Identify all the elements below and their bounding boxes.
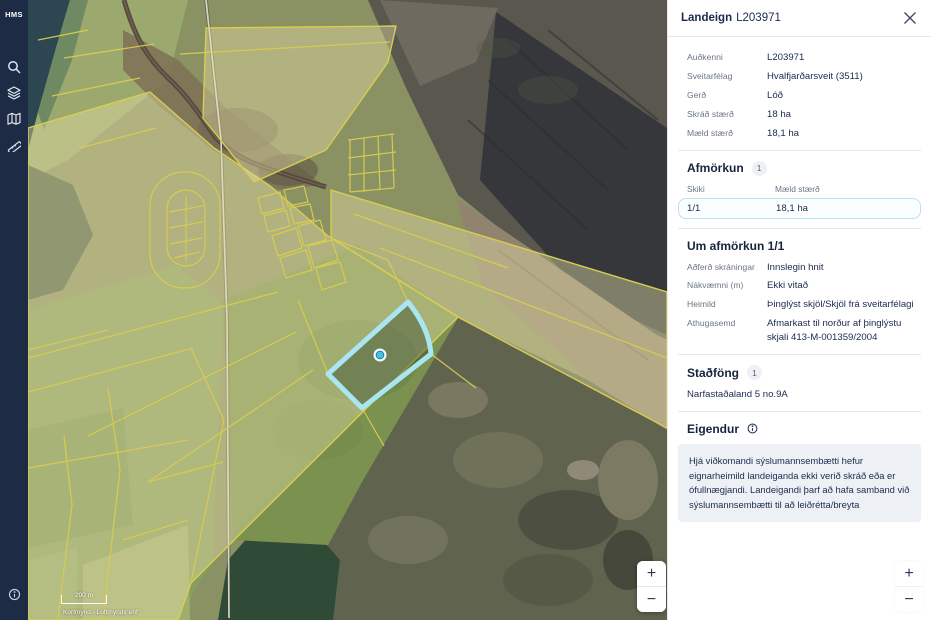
afmorkun-count-badge: 1 — [752, 161, 767, 176]
field-audkenni: Auðkenni L203971 — [687, 51, 921, 65]
map-zoom-out-button[interactable]: − — [637, 587, 666, 612]
section-divider — [678, 354, 921, 355]
map-zoom-control: + − — [637, 561, 666, 612]
field-heimild: Heimild Þinglýst skjöl/Skjöl frá sveitar… — [687, 298, 921, 312]
field-skrad-staerd: Skráð stærð 18 ha — [687, 108, 921, 122]
landeign-panel: LandeignL203971 Auðkenni L203971 Sveitar… — [667, 0, 931, 620]
close-icon — [903, 11, 917, 25]
layers-icon[interactable] — [7, 85, 22, 100]
map-attribution: Kortmynd - Loftmyndir ehf — [63, 609, 138, 616]
panel-title-label: Landeign — [681, 12, 732, 24]
stadfong-address: Narfastaðaland 5 no.9A — [687, 388, 921, 402]
map-book-icon[interactable] — [7, 111, 22, 126]
eigendur-heading: Eigendur — [687, 422, 921, 436]
stadfong-heading: Staðföng 1 — [687, 365, 921, 380]
field-maeld-staerd: Mæld stærð 18,1 ha — [687, 127, 921, 141]
scale-bar: 200 m — [61, 595, 107, 604]
section-divider — [678, 228, 921, 229]
panel-zoom-control: + − — [895, 561, 923, 612]
field-nakvaemni: Nákvæmni (m) Ekki vitað — [687, 279, 921, 293]
section-divider — [678, 150, 921, 151]
eigendur-notice: Hjá viðkomandi sýslumannsembætti hefur e… — [678, 444, 921, 522]
panel-title-id: L203971 — [736, 12, 781, 24]
search-icon[interactable] — [7, 59, 22, 74]
panel-zoom-out-button[interactable]: − — [895, 587, 923, 612]
app-sidebar: HMS — [0, 0, 28, 620]
hms-logo: HMS — [5, 10, 23, 19]
afmorkun-row[interactable]: 1/1 18,1 ha — [678, 198, 921, 219]
measure-ruler-icon[interactable] — [7, 137, 22, 152]
stadfong-count-badge: 1 — [747, 365, 762, 380]
panel-header: LandeignL203971 — [668, 0, 931, 37]
map-viewport[interactable]: 200 m Kortmynd - Loftmyndir ehf + − — [28, 0, 667, 620]
field-gerd: Gerð Lóð — [687, 89, 921, 103]
panel-title: LandeignL203971 — [681, 12, 781, 24]
section-divider — [678, 411, 921, 412]
eigendur-info-icon[interactable] — [747, 423, 758, 434]
scale-bar-label: 200 m — [62, 592, 106, 599]
afmorkun-table-header: Skiki Mæld stærð — [687, 184, 921, 194]
panel-zoom-in-button[interactable]: + — [895, 561, 923, 586]
close-button[interactable] — [902, 10, 918, 26]
um-afmorkun-heading: Um afmörkun 1/1 — [687, 239, 921, 253]
map-zoom-in-button[interactable]: + — [637, 561, 666, 586]
map-canvas[interactable] — [28, 0, 667, 620]
field-adferd-skraningar: Aðferð skráningar Innslegin hnit — [687, 261, 921, 275]
field-sveitarfelag: Sveitarfélag Hvalfjarðarsveit (3511) — [687, 70, 921, 84]
info-icon[interactable] — [7, 587, 22, 602]
afmorkun-heading: Afmörkun 1 — [687, 161, 921, 176]
field-athugasemd: Athugasemd Afmarkast til norður af þingl… — [687, 317, 921, 345]
